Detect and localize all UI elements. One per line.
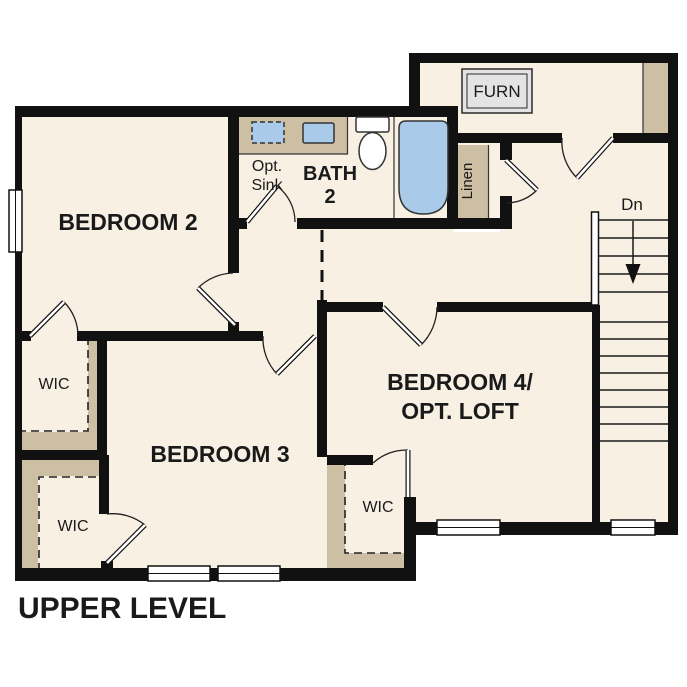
wall-bedroom3-right (317, 300, 327, 457)
sink-fixture (303, 123, 334, 143)
floor-plan-drawing: BEDROOM 2 Opt. Sink BATH 2 Linen FURN Dn… (0, 0, 687, 687)
wall-bottom-left (15, 568, 416, 581)
wic2-label: WIC (57, 518, 88, 535)
wall-stair (592, 305, 600, 525)
wall-hall-a (15, 331, 31, 341)
furnace-label: FURN (473, 82, 520, 101)
toilet-tank (356, 117, 389, 132)
wall-bedroom4-top-b (437, 302, 598, 312)
wall-linen-stub-a (500, 143, 512, 160)
bath-label-line1: BATH (303, 163, 357, 185)
stairs-down-label: Dn (621, 195, 643, 214)
chase-shading (643, 63, 668, 135)
wall-left (15, 106, 22, 581)
opt-sink-label-line2: Sink (251, 177, 283, 194)
plan-title: UPPER LEVEL (18, 592, 226, 625)
wall-bedroom2-right (228, 106, 239, 273)
bedroom4-label-line1: BEDROOM 4/ (387, 369, 533, 395)
wall-furnace-bottom-b (613, 133, 670, 143)
wall-wic2-right (99, 455, 109, 514)
opt-sink-label-line1: Opt. (252, 158, 282, 175)
wall-bath-bottom-b (297, 218, 507, 229)
wall-wic1-right (97, 331, 107, 457)
wall-right (668, 53, 678, 535)
wic1-label: WIC (38, 376, 69, 393)
stair-rail (592, 212, 599, 305)
wall-bedroom4-top-a (317, 302, 383, 312)
wic3-label: WIC (362, 499, 393, 516)
linen-label: Linen (459, 163, 476, 200)
wall-wic-divider (15, 450, 107, 460)
toilet-bowl (359, 133, 386, 170)
wall-furnace-bottom-a (447, 133, 562, 143)
bath-label-line2: 2 (324, 186, 335, 208)
bedroom2-label: BEDROOM 2 (58, 209, 197, 235)
wall-linen-stub-b (500, 196, 512, 229)
floor-stair-hall (500, 138, 674, 528)
floor-plan-page: BEDROOM 2 Opt. Sink BATH 2 Linen FURN Dn… (0, 0, 687, 687)
bedroom4-label-line2: OPT. LOFT (401, 398, 519, 424)
wall-top-right (409, 53, 678, 63)
bedroom3-label: BEDROOM 3 (150, 441, 289, 467)
bathtub (399, 121, 448, 214)
wall-wic3-top (327, 455, 373, 465)
optional-sink-fixture (252, 122, 284, 143)
